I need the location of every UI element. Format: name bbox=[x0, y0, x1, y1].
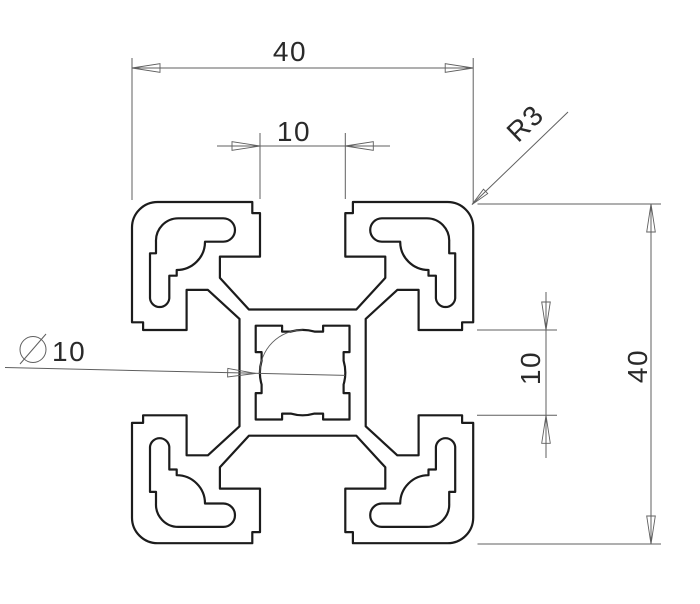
label-top-slot: 10 bbox=[277, 116, 311, 147]
label-right-slot: 10 bbox=[515, 351, 546, 385]
leader-line bbox=[5, 368, 345, 376]
label-right-height: 40 bbox=[622, 349, 653, 383]
technical-drawing: 40 10 R3 10 10 40 bbox=[0, 0, 700, 604]
dimension-annotations bbox=[5, 58, 661, 544]
profile-cross-section bbox=[132, 202, 473, 543]
bore-reference-arc bbox=[260, 330, 303, 373]
corner-cavity-bottom-right bbox=[370, 438, 455, 527]
label-center-bore: 10 bbox=[52, 336, 86, 367]
corner-cavity-top-right bbox=[370, 218, 455, 307]
corner-cavity-bottom-left bbox=[150, 438, 235, 527]
corner-cavity-top-left bbox=[150, 218, 235, 307]
label-corner-radius: R3 bbox=[501, 99, 550, 148]
label-top-width: 40 bbox=[273, 36, 307, 67]
drawing-canvas: 40 10 R3 10 10 40 bbox=[0, 0, 700, 604]
profile-outer-contour bbox=[132, 202, 473, 543]
diameter-symbol-slash bbox=[20, 334, 46, 364]
center-bore-channel bbox=[256, 326, 350, 420]
